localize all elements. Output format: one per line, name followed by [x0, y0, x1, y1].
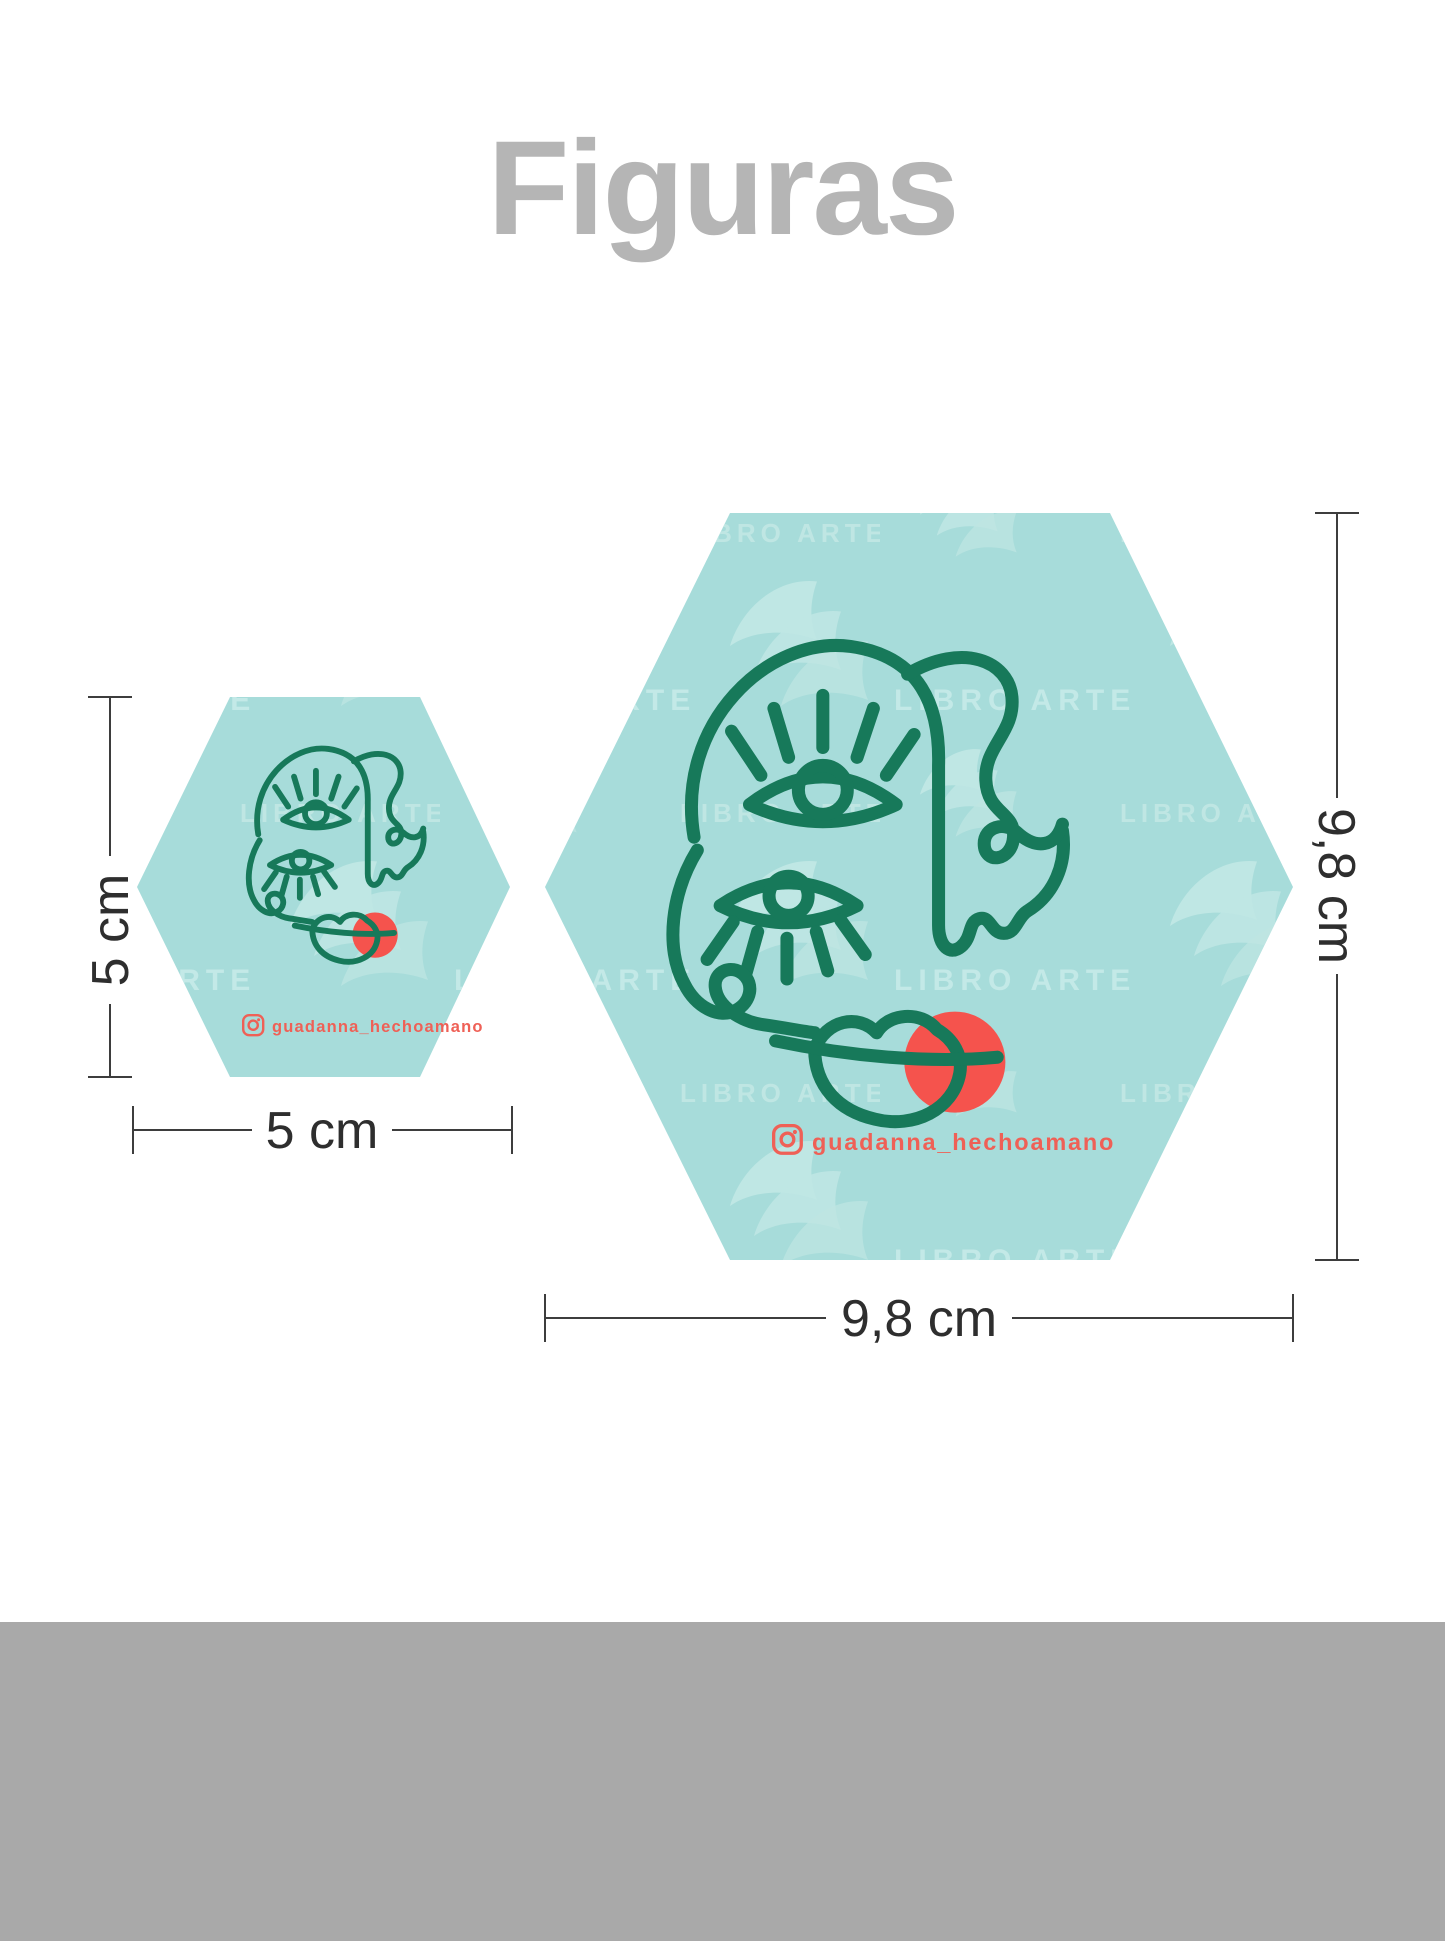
- dimension-label: 9,8 cm: [1307, 808, 1365, 964]
- figures-diagram: LIBRO ARTE LIBRO ARTE: [0, 0, 1445, 1622]
- dimension-small-width: 5 cm: [133, 1102, 512, 1160]
- dimension-label: 5 cm: [266, 1102, 379, 1160]
- hexagon-large: guadanna_hechoamano: [545, 513, 1293, 1260]
- instagram-handle-text: guadanna_hechoamano: [812, 1129, 1115, 1155]
- dimension-small-height: 5 cm: [82, 697, 140, 1077]
- dimension-label: 9,8 cm: [841, 1290, 997, 1348]
- dimension-large-width: 9,8 cm: [545, 1290, 1293, 1348]
- instagram-handle-text: guadanna_hechoamano: [272, 1018, 484, 1036]
- instagram-handle-small: guadanna_hechoamano: [243, 1015, 483, 1036]
- catalog-page: Figuras LIBRO ARTE LIBRO ARTE: [0, 0, 1445, 1941]
- dimension-large-height: 9,8 cm: [1307, 513, 1365, 1260]
- footer-bar: CT 9545 Código BC701 Pág. 23: [0, 1622, 1445, 1941]
- instagram-handle-large: guadanna_hechoamano: [774, 1126, 1116, 1155]
- dimension-label: 5 cm: [82, 874, 140, 987]
- hexagon-small: guadanna_hechoamano: [137, 697, 510, 1077]
